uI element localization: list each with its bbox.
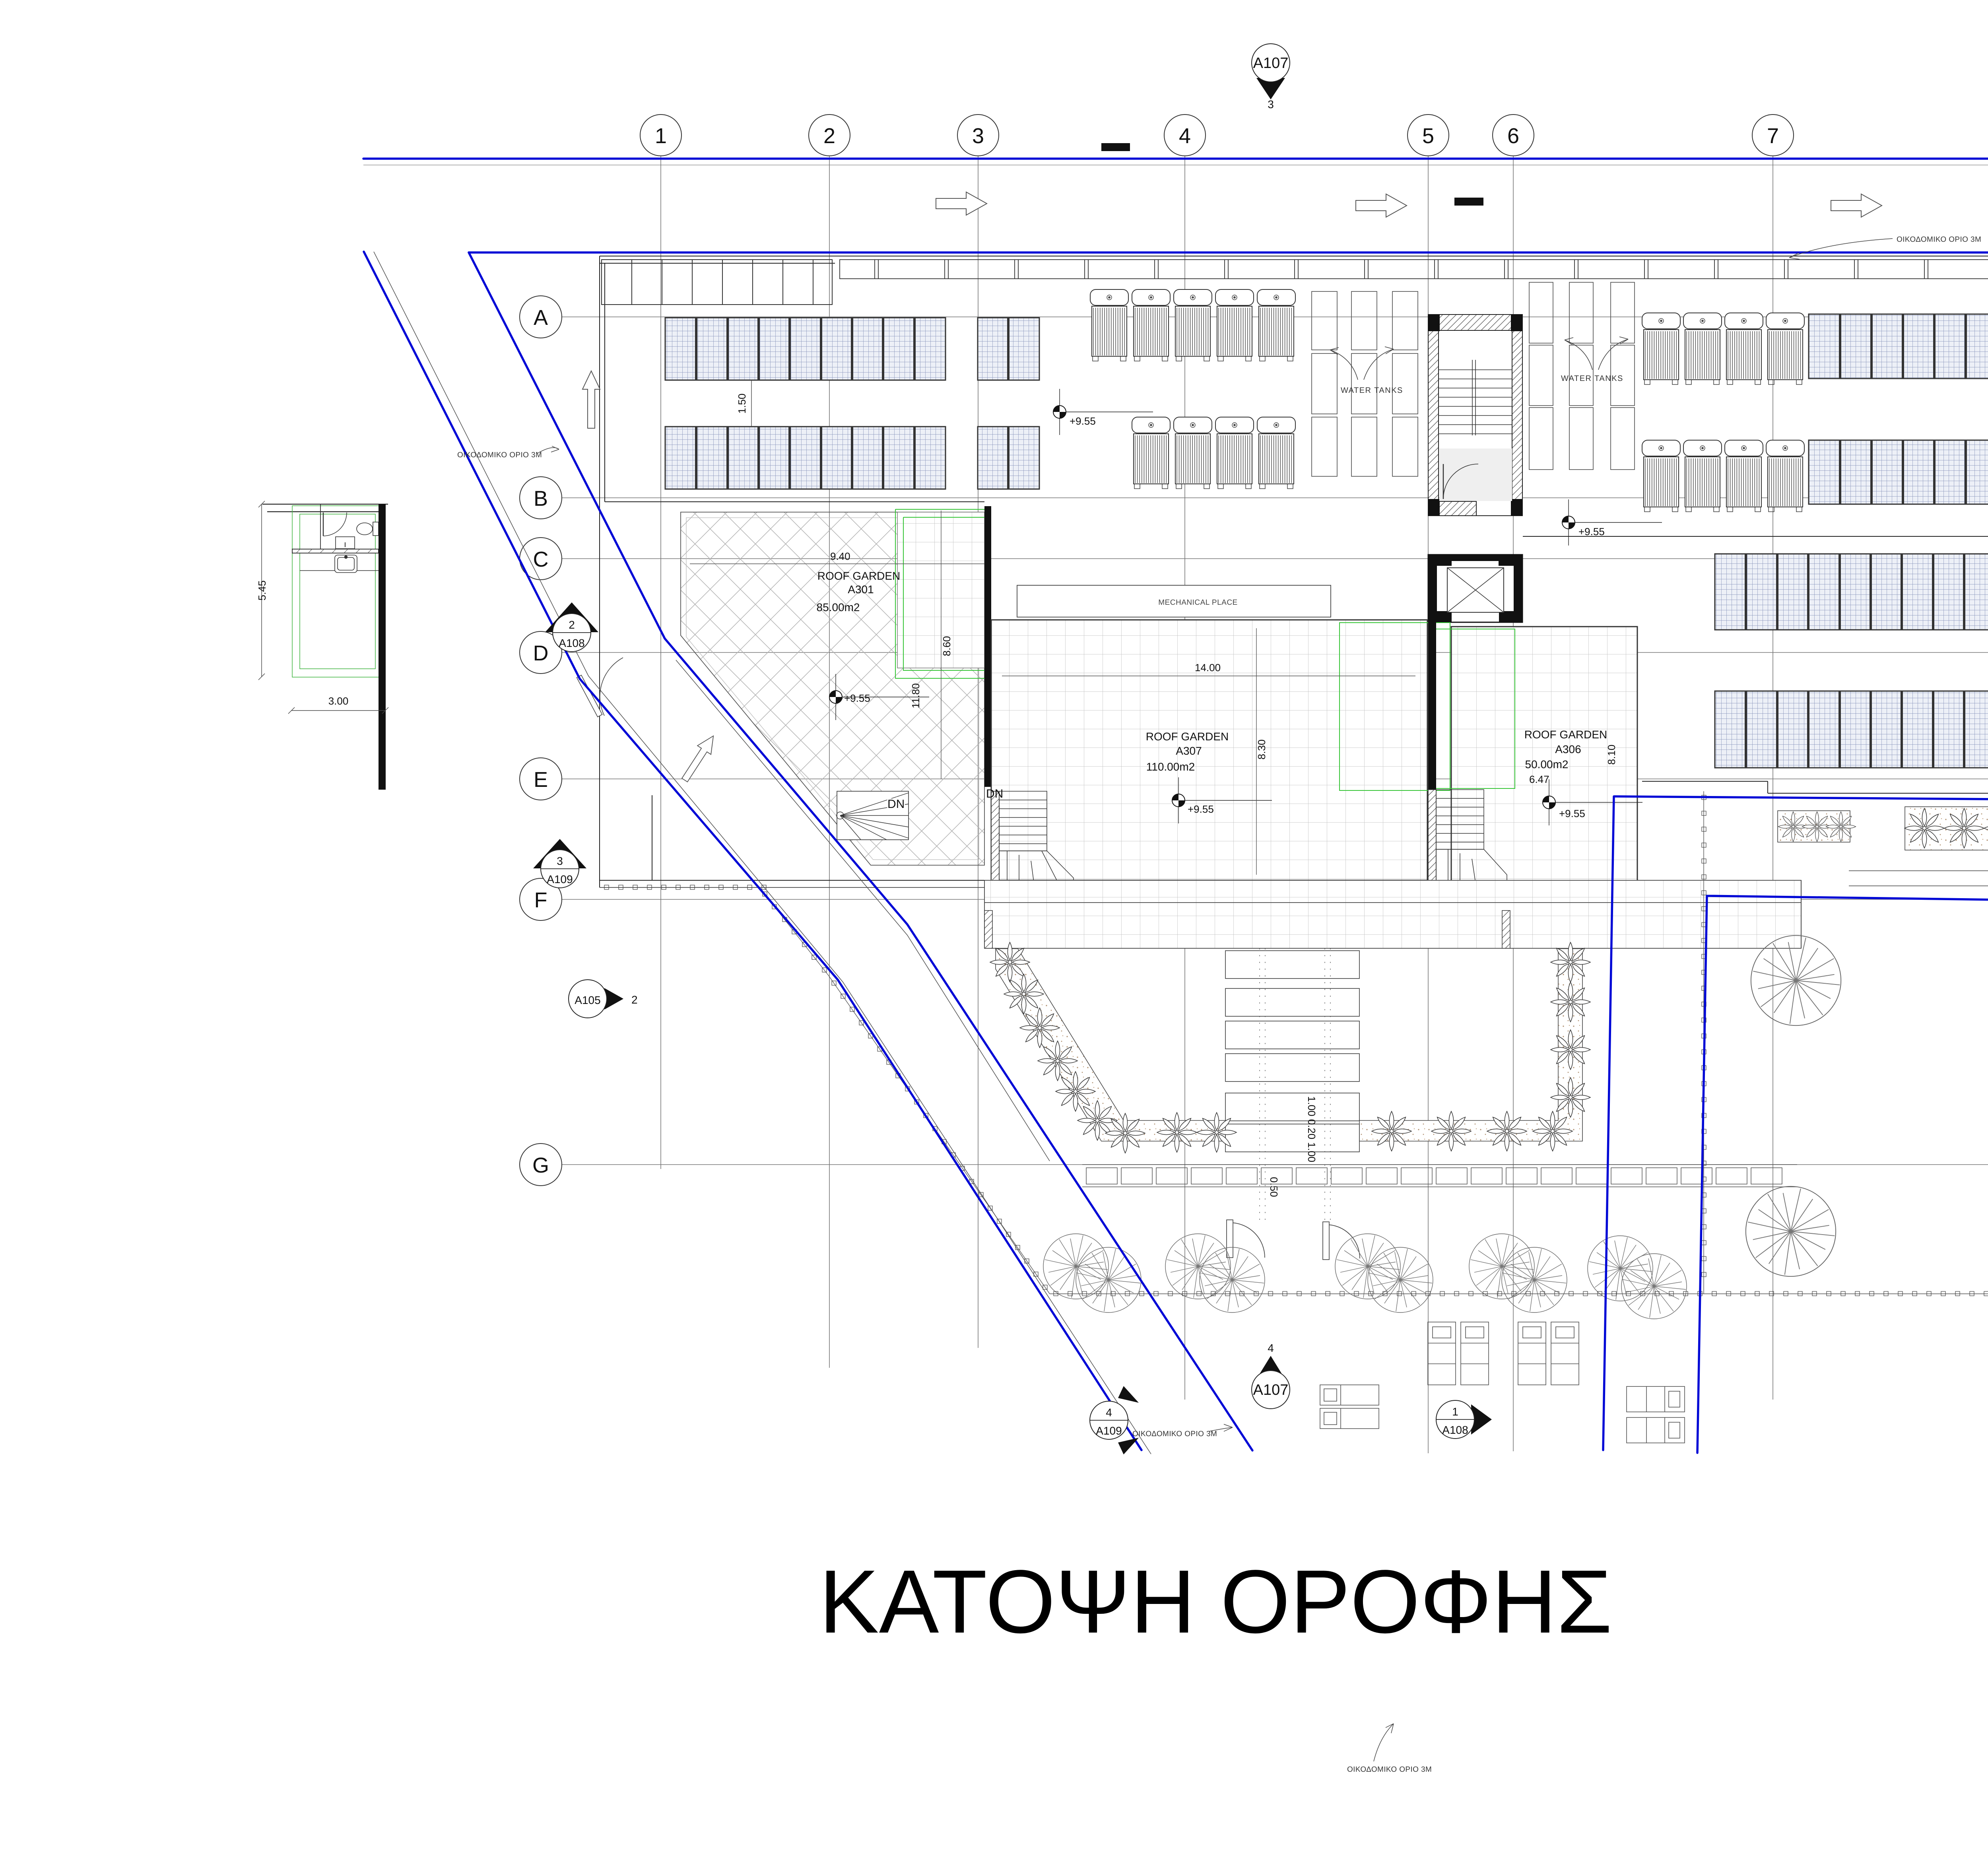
svg-text:1: 1 (1452, 1406, 1458, 1418)
svg-text:2: 2 (823, 124, 835, 148)
svg-text:3: 3 (1268, 98, 1274, 111)
svg-text:WATER TANKS: WATER TANKS (1341, 386, 1403, 395)
svg-text:9.40: 9.40 (830, 550, 850, 562)
svg-text:+9.55: +9.55 (1188, 803, 1214, 815)
svg-text:DN: DN (986, 787, 1003, 800)
svg-text:8.10: 8.10 (1606, 745, 1617, 765)
svg-text:A306: A306 (1555, 743, 1581, 755)
svg-text:50.00m2: 50.00m2 (1525, 758, 1569, 771)
svg-text:1.00 0.20 1.00: 1.00 0.20 1.00 (1306, 1096, 1318, 1162)
svg-text:8.60: 8.60 (941, 636, 953, 656)
svg-text:+9.55: +9.55 (1578, 526, 1605, 538)
svg-text:ROOF GARDEN: ROOF GARDEN (1524, 728, 1607, 741)
svg-text:3.00: 3.00 (328, 695, 349, 707)
svg-text:F: F (534, 888, 547, 912)
svg-text:5.45: 5.45 (256, 581, 268, 601)
svg-text:C: C (533, 548, 549, 571)
svg-text:ΟΙΚΟΔΟΜΙΚΟ ΟΡΙΟ 3Μ: ΟΙΚΟΔΟΜΙΚΟ ΟΡΙΟ 3Μ (1132, 1430, 1217, 1438)
svg-text:WATER TANKS: WATER TANKS (1561, 374, 1623, 383)
svg-text:11.80: 11.80 (910, 683, 922, 708)
svg-text:ΟΙΚΟΔΟΜΙΚΟ ΟΡΙΟ 3Μ: ΟΙΚΟΔΟΜΙΚΟ ΟΡΙΟ 3Μ (1347, 1765, 1432, 1774)
svg-text:A107: A107 (1253, 55, 1289, 72)
svg-text:ROOF GARDEN: ROOF GARDEN (817, 570, 900, 582)
svg-text:14.00: 14.00 (1195, 662, 1221, 674)
svg-text:6: 6 (1507, 124, 1519, 148)
svg-text:+9.55: +9.55 (844, 692, 870, 704)
svg-text:4: 4 (1106, 1406, 1112, 1419)
svg-text:A107: A107 (1253, 1382, 1289, 1398)
svg-text:ROOF GARDEN: ROOF GARDEN (1146, 730, 1229, 743)
svg-text:6.47: 6.47 (1529, 773, 1549, 785)
svg-text:1: 1 (655, 124, 667, 148)
svg-text:B: B (534, 487, 548, 511)
svg-text:A105: A105 (575, 994, 600, 1006)
svg-text:G: G (532, 1153, 549, 1177)
svg-text:A108: A108 (1442, 1424, 1468, 1436)
svg-text:4: 4 (1268, 1342, 1274, 1354)
svg-text:MECHANICAL PLACE: MECHANICAL PLACE (1158, 598, 1237, 607)
svg-text:A: A (534, 306, 548, 330)
svg-text:A108: A108 (559, 637, 584, 649)
svg-text:3: 3 (972, 124, 984, 148)
svg-text:85.00m2: 85.00m2 (817, 601, 860, 614)
svg-text:7: 7 (1767, 124, 1779, 148)
svg-text:1.50: 1.50 (736, 394, 748, 414)
svg-text:5: 5 (1422, 124, 1434, 148)
svg-text:2: 2 (631, 994, 638, 1006)
svg-text:3: 3 (557, 855, 563, 867)
svg-text:ΟΙΚΟΔΟΜΙΚΟ ΟΡΙΟ 3Μ: ΟΙΚΟΔΟΜΙΚΟ ΟΡΙΟ 3Μ (1897, 235, 1981, 244)
svg-text:ΚΑΤΟΨΗ ΟΡΟΦΗΣ: ΚΑΤΟΨΗ ΟΡΟΦΗΣ (819, 1551, 1612, 1652)
svg-text:110.00m2: 110.00m2 (1146, 761, 1195, 773)
svg-text:A307: A307 (1176, 745, 1202, 757)
svg-text:+9.55: +9.55 (1559, 808, 1585, 819)
svg-text:A109: A109 (1096, 1425, 1122, 1437)
svg-text:A301: A301 (848, 583, 874, 596)
svg-text:4: 4 (1179, 124, 1191, 148)
svg-text:DN: DN (887, 798, 905, 811)
svg-text:2: 2 (569, 619, 575, 631)
svg-text:ΟΙΚΟΔΟΜΙΚΟ ΟΡΙΟ 3Μ: ΟΙΚΟΔΟΜΙΚΟ ΟΡΙΟ 3Μ (457, 451, 542, 459)
svg-text:A109: A109 (547, 873, 573, 885)
svg-text:E: E (534, 768, 548, 792)
svg-text:8.30: 8.30 (1256, 740, 1268, 760)
svg-text:+9.55: +9.55 (1070, 415, 1096, 427)
svg-text:D: D (533, 641, 549, 665)
